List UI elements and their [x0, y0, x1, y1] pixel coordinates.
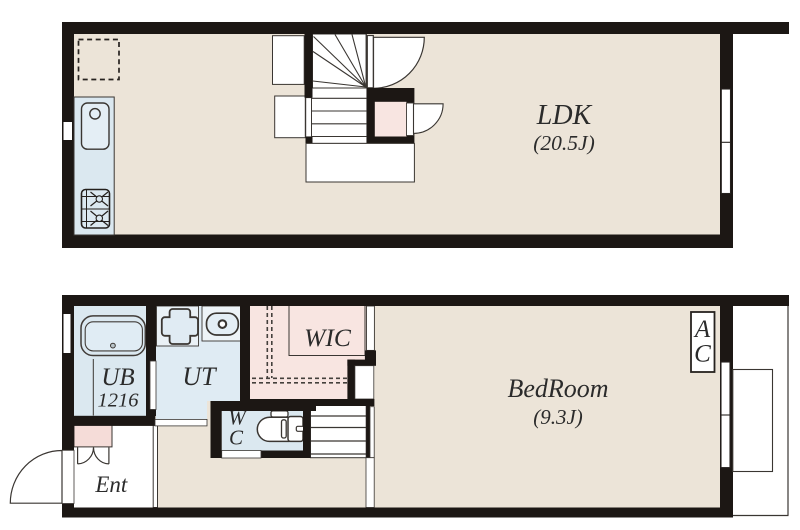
- svg-text:WIC: WIC: [304, 323, 352, 352]
- svg-text:UB: UB: [101, 364, 134, 391]
- svg-text:Ent: Ent: [94, 472, 128, 497]
- svg-text:BedRoom: BedRoom: [507, 374, 608, 403]
- svg-text:A: A: [693, 316, 711, 343]
- svg-text:LDK: LDK: [536, 100, 593, 131]
- svg-text:(9.3J): (9.3J): [533, 405, 583, 429]
- svg-text:(20.5J): (20.5J): [533, 131, 595, 155]
- svg-text:UT: UT: [182, 362, 217, 391]
- svg-text:C: C: [694, 341, 711, 368]
- svg-text:C: C: [229, 426, 244, 450]
- svg-text:1216: 1216: [98, 390, 140, 412]
